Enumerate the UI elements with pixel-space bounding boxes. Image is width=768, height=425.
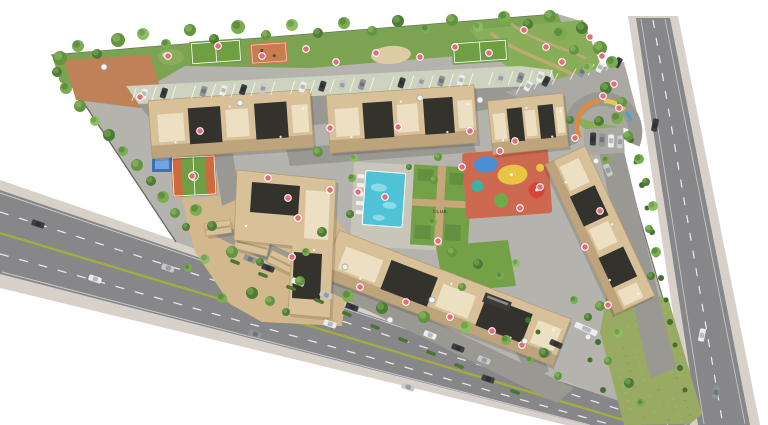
amenity-marker[interactable] [215,43,222,50]
tree-icon [447,247,457,257]
club-label: CLUB [433,209,448,215]
tree-icon [118,146,128,156]
tree-icon [498,11,510,23]
block-marker[interactable] [585,334,591,340]
tree-icon [527,357,534,364]
tree-icon [184,264,192,272]
tree-icon [642,178,650,186]
clubhouse-roof: CLUB [410,165,472,248]
tree-icon [231,20,245,34]
amenity-marker[interactable] [357,284,364,291]
amenity-marker[interactable] [265,175,272,182]
tree-icon [367,26,377,36]
amenity-marker[interactable] [452,44,459,51]
bush-icon [673,343,678,348]
tree-icon [421,24,431,34]
tree-icon [170,208,180,218]
tree-icon [184,24,196,36]
tree-icon [157,191,169,203]
amenity-marker[interactable] [616,105,623,112]
bush-icon [536,330,541,335]
tree-icon [348,174,356,182]
amenity-marker[interactable] [572,135,579,142]
tree-icon [350,154,358,162]
sports-court [451,38,508,65]
tree-icon [137,28,149,40]
kids-playground [462,147,552,219]
tree-icon [648,201,658,211]
tree-icon [338,17,350,29]
block-marker[interactable] [429,297,435,303]
tree-icon [645,225,653,233]
tree-icon [90,116,100,126]
tree-icon [583,63,593,73]
amenity-marker[interactable] [197,128,204,135]
block-marker[interactable] [593,158,599,164]
amenity-marker[interactable] [327,125,334,132]
tree-icon [226,246,238,258]
tree-icon [72,40,84,52]
tree-icon [569,45,579,55]
car-icon [599,133,605,146]
tree-icon [501,335,511,345]
tree-icon [146,176,156,186]
tree-icon [392,15,404,27]
bush-icon [588,358,593,363]
tree-icon [554,372,562,380]
car-icon [608,134,614,147]
tree-icon [623,131,633,141]
block-marker[interactable] [342,264,348,270]
bush-icon [525,317,531,323]
tree-icon [286,19,298,31]
tree-icon [207,221,217,231]
tree-icon [418,311,430,323]
tree-icon [576,22,588,34]
amenity-marker[interactable] [599,53,606,60]
tree-icon [313,28,323,38]
tree-icon [430,176,438,184]
amenity-marker[interactable] [295,215,302,222]
tree-icon [74,100,86,112]
amenity-marker[interactable] [467,128,474,135]
bush-icon [667,319,673,325]
tree-icon [611,112,623,124]
tree-icon [103,129,115,141]
amenity-marker[interactable] [382,194,389,201]
block-marker[interactable] [522,338,528,344]
tree-icon [570,296,578,304]
bush-icon [595,339,601,345]
amenity-marker[interactable] [165,53,172,60]
masterplan-svg: CLUB [0,0,768,425]
tree-icon [539,348,549,358]
bush-icon [658,275,664,281]
tree-icon [52,67,62,77]
tree-icon [182,223,190,231]
amenity-marker[interactable] [459,164,466,171]
amenity-marker[interactable] [559,59,566,66]
amenity-marker[interactable] [189,173,196,180]
block-marker[interactable] [101,64,107,70]
amenity-marker[interactable] [259,53,266,60]
block-marker[interactable] [237,100,243,106]
amenity-marker[interactable] [521,27,528,34]
tree-icon [53,51,67,65]
amenity-marker[interactable] [285,195,292,202]
masterplan-render: CLUB [0,0,768,425]
tree-icon [613,328,623,338]
amenity-marker[interactable] [355,189,362,196]
tree-icon [544,10,556,22]
amenity-marker[interactable] [333,59,340,66]
tree-icon [473,22,483,32]
tree-icon [634,154,644,164]
amenity-marker[interactable] [605,302,612,309]
tree-icon [584,313,592,321]
tree-icon [217,293,227,303]
tree-icon [434,153,442,161]
tree-icon [302,248,310,256]
block-marker[interactable] [387,317,393,323]
tree-icon [595,301,605,311]
tree-icon [651,247,661,257]
tree-icon [317,227,327,237]
car-icon [617,135,623,148]
amenity-marker[interactable] [373,50,380,57]
bush-icon [600,387,606,393]
tree-icon [624,378,634,388]
tree-icon [60,82,72,94]
amenity-marker[interactable] [289,254,296,261]
amenity-marker[interactable] [597,208,604,215]
tree-icon [131,159,143,171]
amenity-marker[interactable] [447,314,454,321]
amenity-marker[interactable] [600,93,607,100]
amenity-marker[interactable] [327,187,334,194]
tree-icon [429,218,437,226]
amenity-marker[interactable] [137,94,144,101]
block-marker[interactable] [417,95,423,101]
tree-icon [606,56,618,68]
tree-icon [295,276,305,286]
tree-icon [256,258,264,266]
amenity-marker[interactable] [517,205,524,212]
amenity-marker[interactable] [497,148,504,155]
tree-icon [346,210,354,218]
apartment-building [148,89,316,161]
tree-icon [553,27,567,41]
amenity-marker[interactable] [611,81,618,88]
tree-icon [460,321,472,333]
bush-icon [664,298,669,303]
amenity-marker[interactable] [303,46,310,53]
bush-icon [677,365,683,371]
tree-icon [473,259,483,269]
tree-icon [92,49,102,59]
tree-icon [282,308,290,316]
tree-icon [313,147,323,157]
apartment-building [326,85,480,156]
bush-icon [683,388,688,393]
tree-icon [637,399,645,407]
clay-play-court [249,41,288,66]
tree-icon [647,272,655,280]
amenity-marker[interactable] [417,54,424,61]
car-icon [590,132,596,145]
amenity-marker[interactable] [486,50,493,57]
tree-icon [604,357,612,365]
tree-icon [200,254,210,264]
tree-icon [602,156,610,164]
amenity-marker[interactable] [512,138,519,145]
tree-icon [190,204,202,216]
tree-icon [594,116,604,126]
block-marker[interactable] [477,97,483,103]
amenity-marker[interactable] [537,184,544,191]
tree-icon [458,283,466,291]
tree-icon [342,290,354,302]
tree-icon [406,164,412,170]
tree-icon [446,14,458,26]
amenity-marker[interactable] [582,244,589,251]
amenity-marker[interactable] [587,34,594,41]
tree-icon [161,39,171,49]
tree-icon [246,287,258,299]
amenity-marker[interactable] [395,124,402,131]
tree-icon [496,272,504,280]
tree-icon [111,33,125,47]
tree-icon [261,30,271,40]
amenity-marker[interactable] [403,299,410,306]
tree-icon [265,296,275,306]
amenity-marker[interactable] [543,44,550,51]
amenity-marker[interactable] [489,328,496,335]
tree-icon [376,302,388,314]
tree-icon [566,116,574,124]
tree-icon [512,259,520,267]
amenity-marker[interactable] [435,238,442,245]
